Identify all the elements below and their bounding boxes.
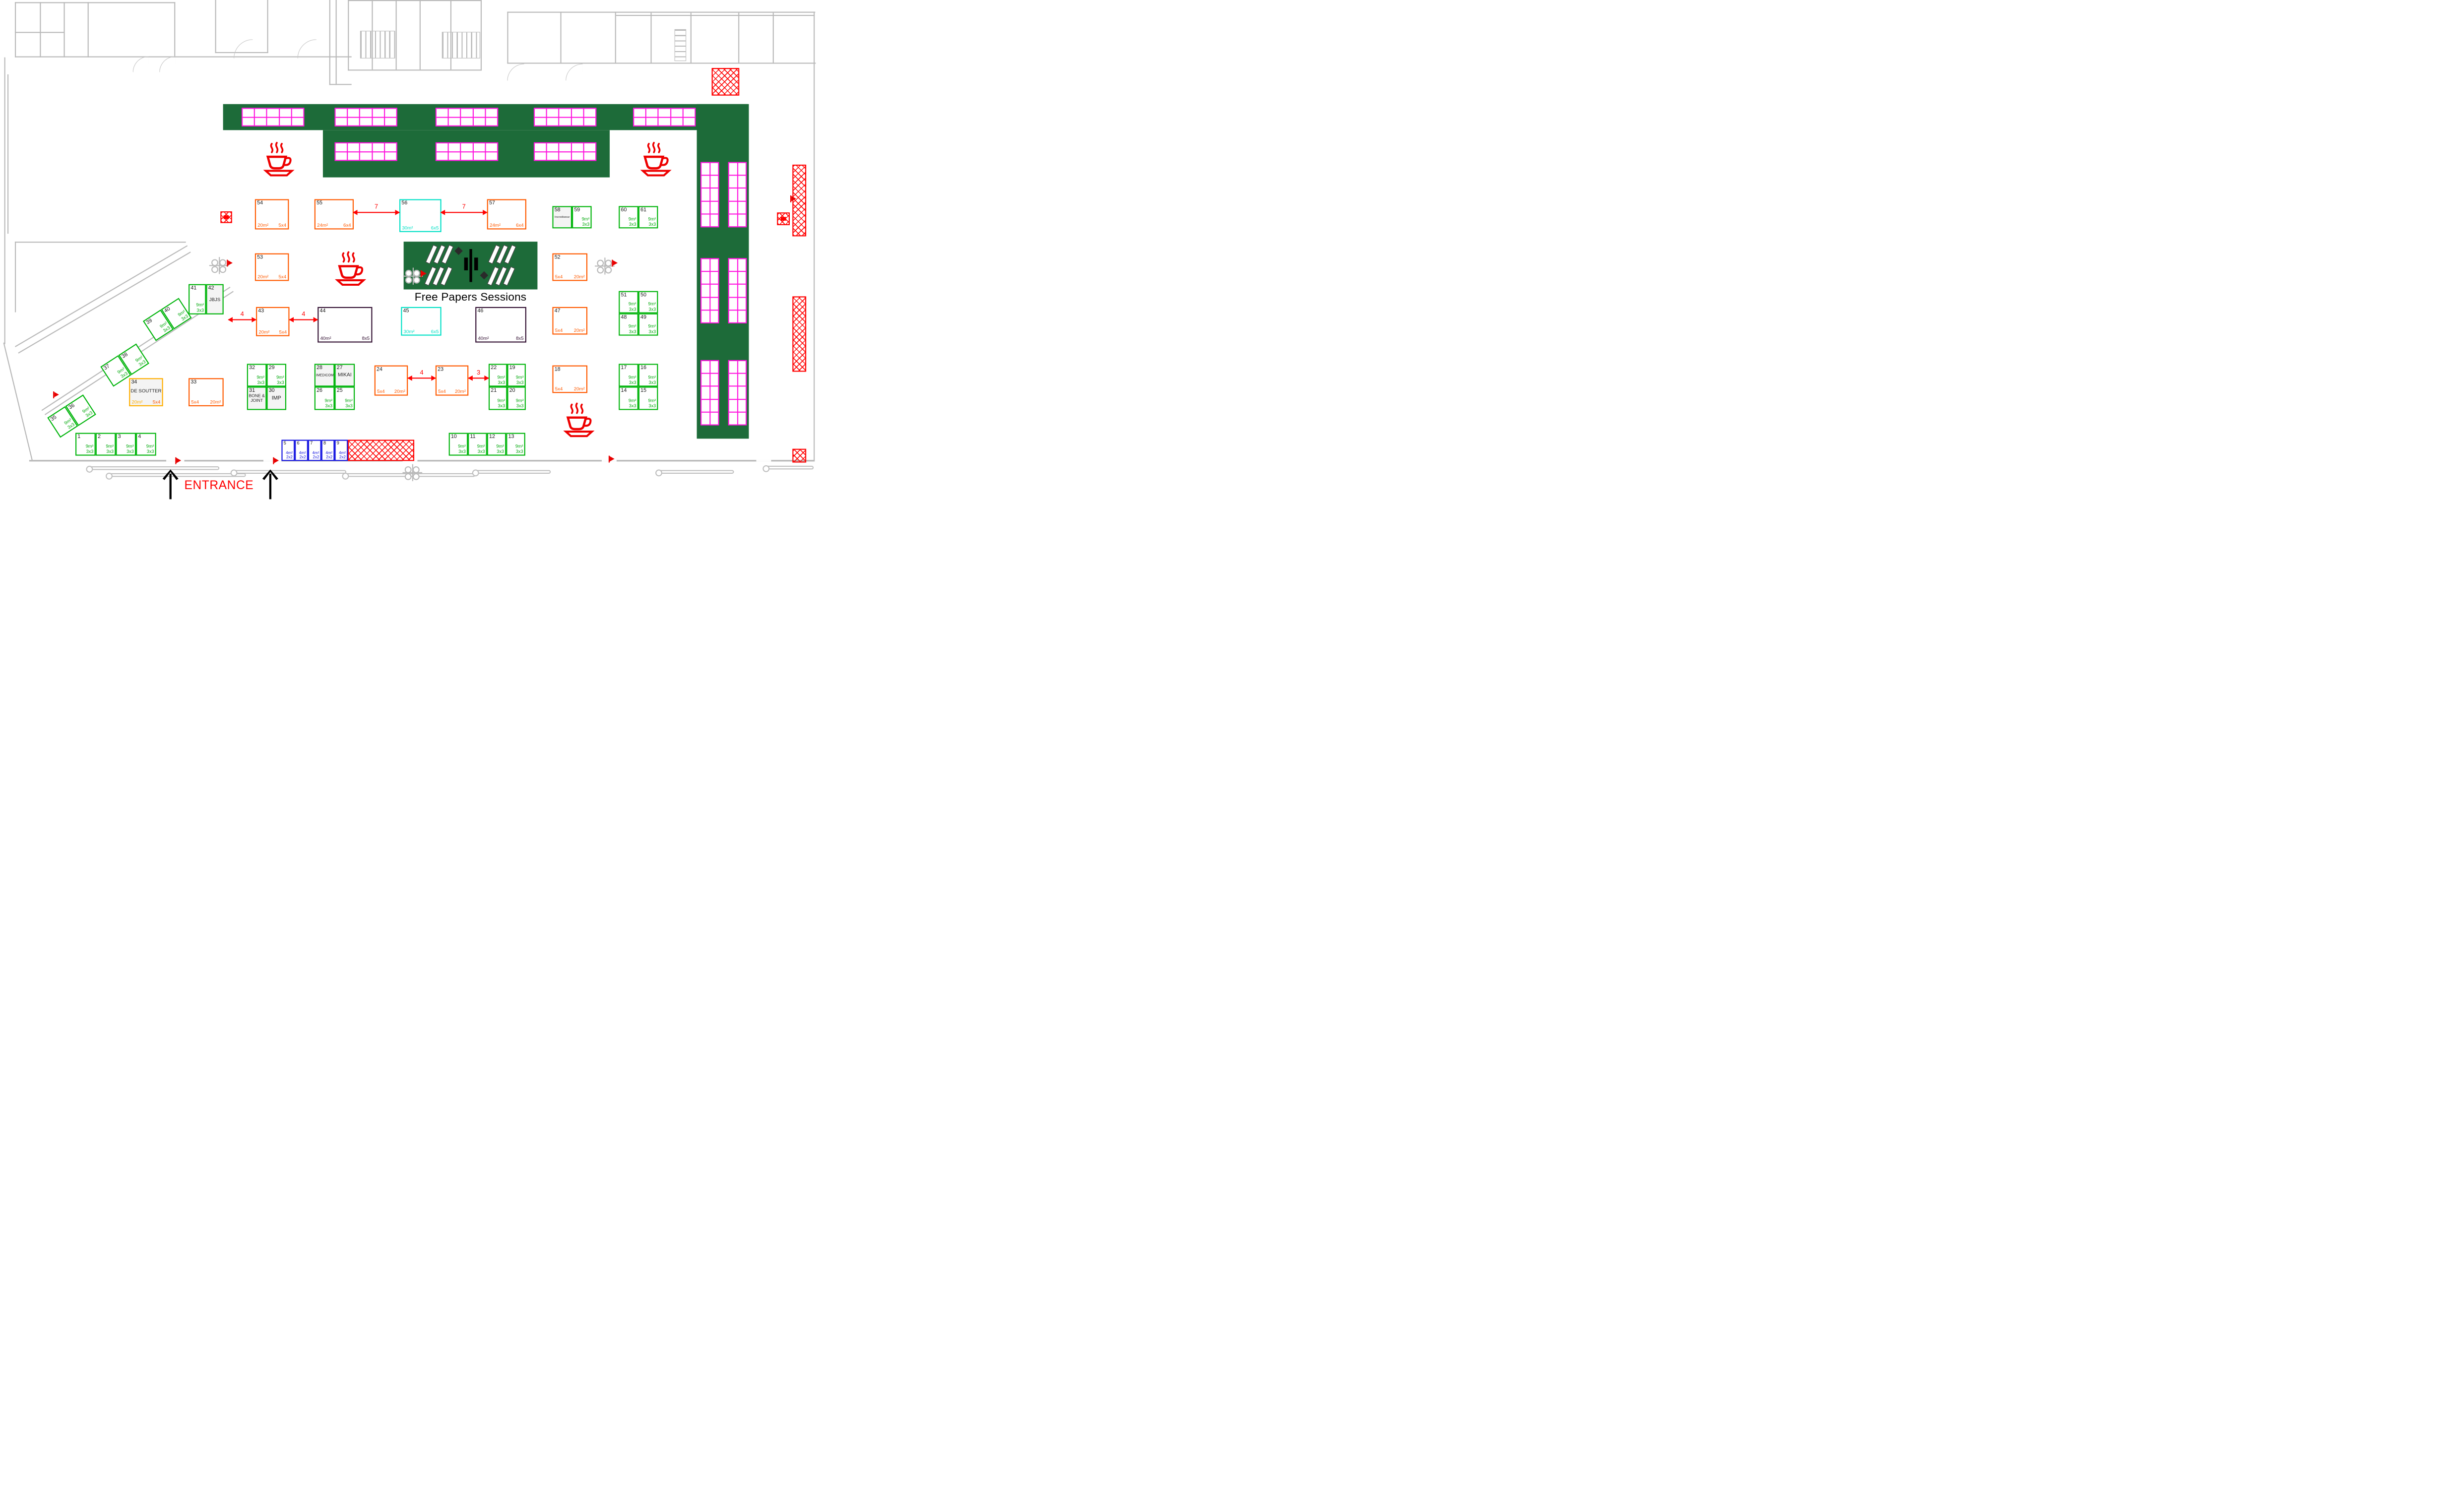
- poster-board-cell: [535, 118, 546, 126]
- stairs-icon: [675, 29, 687, 61]
- booth-number: 22: [491, 365, 497, 371]
- poster-board-cell: [255, 118, 266, 126]
- booth-number: 43: [258, 308, 264, 314]
- door-flag-icon: [53, 391, 60, 398]
- booth-size-label: 4m²2x2: [339, 450, 346, 459]
- wall-segment: [15, 2, 175, 3]
- booth-30: 30IMP: [266, 386, 286, 410]
- booth-number: 29: [269, 365, 275, 371]
- booth-number: 25: [337, 388, 343, 394]
- wall-segment: [348, 0, 482, 1]
- poster-board-cell: [547, 152, 559, 160]
- poster-board-cell: [461, 118, 473, 126]
- booth-22: 229m²3x3: [489, 364, 507, 386]
- poster-board-cell: [461, 109, 473, 117]
- booth-label-left: 30m²: [402, 226, 413, 231]
- poster-board-cell: [437, 143, 448, 151]
- booth-number: 12: [489, 434, 495, 440]
- door-flag-icon: [421, 270, 428, 277]
- wall-segment: [481, 0, 482, 70]
- poster-board-cell: [729, 400, 737, 412]
- poster-board-cell: [738, 189, 746, 200]
- poster-board-cell: [449, 143, 460, 151]
- poster-board-cell: [360, 143, 372, 151]
- poster-board-cell: [684, 118, 695, 126]
- booth-label-right: 8x5: [516, 336, 524, 341]
- poster-board-cell: [701, 163, 709, 175]
- wall-segment: [267, 0, 268, 53]
- booth-label-left: 40m²: [320, 336, 331, 341]
- coffee-icon: [262, 141, 295, 180]
- booth-label-left: 30m²: [404, 329, 415, 334]
- poster-board-cell: [684, 109, 695, 117]
- poster-board: [334, 142, 397, 161]
- poster-board-cell: [280, 118, 291, 126]
- poster-board-cell: [560, 109, 571, 117]
- booth-number: 36: [67, 402, 76, 411]
- booth-number: 1: [77, 434, 80, 440]
- door-opening: [757, 460, 771, 461]
- entrance-label: ENTRANCE: [184, 478, 253, 493]
- dimension-arrow: 7: [441, 212, 487, 213]
- chair-icon: [405, 466, 412, 473]
- poster-board-cell: [729, 259, 737, 271]
- poster-board-cell: [486, 152, 497, 160]
- booth-4: 49m²3x3: [136, 433, 156, 456]
- booth-label-left: 24m²: [490, 223, 501, 228]
- booth-48: 489m²3x3: [619, 314, 638, 336]
- door-swing-arc: [133, 56, 149, 72]
- booth-46: 4640m²8x5: [475, 307, 526, 343]
- booth-24: 245x420m²: [375, 366, 408, 396]
- poster-board-cell: [710, 311, 718, 322]
- poster-board-cell: [738, 163, 746, 175]
- service-table-icon: [405, 466, 421, 480]
- booth-size-label: 9m²3x3: [134, 355, 146, 368]
- wall-segment: [616, 63, 816, 63]
- stairs-icon: [442, 32, 480, 59]
- booth-number: 40: [163, 306, 172, 315]
- booth-size-label: 9m²3x3: [256, 375, 264, 385]
- service-table-icon: [211, 259, 227, 272]
- door-flag-icon: [609, 456, 616, 463]
- poster-board-cell: [385, 143, 396, 151]
- poster-board-cell: [729, 214, 737, 226]
- booth-number: 41: [190, 285, 196, 291]
- booth-label-right: 20m²: [574, 386, 585, 391]
- booth-61: 619m²3x3: [638, 206, 658, 228]
- wall-segment: [4, 58, 5, 344]
- booth-21: 219m²3x3: [489, 386, 507, 410]
- dimension-arrow: 7: [353, 212, 399, 213]
- hatched-block: [777, 212, 790, 225]
- poster-board-cell: [738, 201, 746, 213]
- poster-board-cell: [738, 272, 746, 284]
- poster-board: [534, 108, 596, 126]
- hatched-block: [712, 68, 740, 96]
- poster-board-cell: [348, 143, 359, 151]
- poster-board-cell: [373, 152, 384, 160]
- poster-board-cell: [360, 109, 372, 117]
- poster-board: [242, 108, 304, 126]
- poster-board-cell: [738, 361, 746, 373]
- booth-number: 13: [508, 434, 514, 440]
- poster-board-cell: [729, 298, 737, 310]
- poster-board-cell: [474, 143, 485, 151]
- booth-number: 57: [489, 200, 495, 206]
- poster-board-cell: [385, 118, 396, 126]
- chair-icon: [219, 266, 226, 273]
- poster-board-cell: [701, 387, 709, 399]
- booth-47: 475x420m²: [552, 307, 587, 335]
- dimension-arrow: 3: [468, 378, 489, 378]
- poster-board-cell: [572, 118, 583, 126]
- poster-board-cell: [701, 400, 709, 412]
- chair-icon: [405, 270, 412, 277]
- free-papers-label: Free Papers Sessions: [397, 291, 544, 304]
- booth-20: 209m²3x3: [507, 386, 525, 410]
- dimension-label: 4: [420, 369, 423, 376]
- poster-board-cell: [729, 413, 737, 425]
- booth-label-left: 20m²: [257, 223, 268, 228]
- booth-number: 7: [310, 441, 313, 446]
- poster-board: [700, 258, 719, 323]
- poster-board-cell: [738, 413, 746, 425]
- poster-board-cell: [659, 109, 670, 117]
- booth-50: 509m²3x3: [638, 291, 658, 314]
- wall-segment: [15, 2, 16, 57]
- wall-segment: [507, 12, 815, 13]
- poster-board-cell: [267, 118, 279, 126]
- poster-board-cell: [437, 109, 448, 117]
- booth-size-label: 4m²2x2: [325, 450, 332, 459]
- booth-number: 10: [451, 434, 457, 440]
- booth-number: 9: [337, 441, 339, 446]
- booth-number: 24: [377, 367, 382, 373]
- booth-18: 185x420m²: [552, 366, 587, 393]
- poster-board-cell: [560, 152, 571, 160]
- booth-exhibitor-name: BONE & JOINT: [249, 393, 265, 403]
- booth-27: 27MIKAI: [334, 364, 355, 386]
- booth-19: 199m²3x3: [507, 364, 525, 386]
- poster-board-cell: [584, 109, 595, 117]
- chair-icon: [413, 270, 420, 277]
- booth-number: 44: [320, 308, 326, 314]
- poster-board-cell: [710, 259, 718, 271]
- booth-label-left: 40m²: [478, 336, 489, 341]
- booth-size-label: 4m²2x2: [299, 450, 306, 459]
- booth-number: 16: [640, 365, 646, 371]
- poster-board-cell: [738, 285, 746, 297]
- booth-number: 55: [316, 200, 322, 206]
- poster-board: [334, 108, 397, 126]
- booth-number: 32: [249, 365, 255, 371]
- door-swing-arc: [234, 39, 253, 59]
- booth-size-label: 9m²3x3: [196, 303, 204, 313]
- booth-label-left: 5x4: [438, 389, 446, 394]
- booth-size-label: 9m²3x3: [497, 398, 505, 408]
- booth-number: 38: [121, 352, 129, 360]
- arrow-stem: [170, 474, 172, 499]
- poster-board-cell: [461, 152, 473, 160]
- hatched-block-core: [224, 215, 229, 219]
- poster-board-cell: [336, 118, 347, 126]
- booth-number: 26: [316, 388, 322, 394]
- booth-number: 4: [138, 434, 141, 440]
- booth-number: 47: [555, 308, 561, 314]
- door-flag-icon: [227, 260, 234, 267]
- booth-number: 21: [491, 388, 497, 394]
- booth-32: 329m²3x3: [247, 364, 267, 386]
- poster-board-cell: [584, 143, 595, 151]
- booth-5: 54m²2x2: [281, 440, 295, 461]
- booth-number: 15: [640, 388, 646, 394]
- poster-board-cell: [729, 311, 737, 322]
- booth-44: 4440m²8x5: [317, 307, 372, 343]
- floor-plan: POSTER AREA Free Papers Sessions ENTRANC…: [0, 0, 820, 503]
- poster-board-cell: [572, 143, 583, 151]
- wall-diagonal: [3, 343, 33, 461]
- booth-60: 609m²3x3: [619, 206, 638, 228]
- poster-board-cell: [373, 118, 384, 126]
- booth-size-label: 9m²3x3: [629, 324, 636, 334]
- chair-icon: [405, 277, 412, 284]
- booth-number: 34: [131, 379, 137, 385]
- poster-board-cell: [547, 118, 559, 126]
- poster-board-cell: [437, 152, 448, 160]
- booth-size-label: 9m²3x3: [629, 398, 636, 408]
- radiator: [475, 470, 551, 473]
- booth-54: 5420m²5x4: [255, 199, 289, 229]
- door-swing-arc: [159, 56, 175, 72]
- poster-board-cell: [701, 272, 709, 284]
- booth-7: 74m²2x2: [308, 440, 321, 461]
- booth-size-label: 9m²3x3: [515, 444, 523, 454]
- booth-1: 19m²3x3: [75, 433, 96, 456]
- hatched-block-core: [781, 217, 786, 220]
- booth-55: 5524m²6x4: [315, 199, 354, 229]
- poster-board-cell: [738, 298, 746, 310]
- poster-board-cell: [738, 374, 746, 386]
- poster-board-cell: [701, 189, 709, 200]
- wall-segment: [329, 84, 352, 85]
- poster-board-cell: [449, 152, 460, 160]
- wall-segment: [691, 13, 692, 64]
- poster-board: [728, 258, 747, 323]
- booth-number: 54: [257, 200, 263, 206]
- wall-segment: [650, 13, 651, 64]
- booth-size-label: 9m²3x3: [582, 217, 590, 227]
- poster-board-cell: [710, 400, 718, 412]
- poster-board: [436, 108, 498, 126]
- booth-size-label: 9m²3x3: [106, 444, 114, 454]
- poster-board-cell: [292, 109, 304, 117]
- wall-segment: [7, 74, 8, 234]
- booth-number: 20: [509, 388, 515, 394]
- poster-board-cell: [336, 109, 347, 117]
- chair-icon: [219, 259, 226, 266]
- booth-label-left: 5x4: [555, 275, 563, 280]
- poster-board-cell: [710, 189, 718, 200]
- poster-board-cell: [738, 214, 746, 226]
- booth-label-right: 5x4: [279, 330, 287, 335]
- poster-board-cell: [701, 176, 709, 188]
- hatched-block: [792, 296, 806, 372]
- chair-icon: [413, 473, 420, 480]
- booth-number: 14: [621, 388, 627, 394]
- booth-label-right: 6x4: [516, 223, 524, 228]
- door-flag-icon: [612, 260, 619, 267]
- hatched-block: [792, 449, 806, 463]
- dimension-label: 4: [241, 310, 244, 317]
- poster-board-cell: [474, 109, 485, 117]
- poster-board-cell: [486, 109, 497, 117]
- poster-board-cell: [659, 118, 670, 126]
- booth-10: 109m²3x3: [449, 433, 468, 456]
- wall-segment: [88, 2, 89, 57]
- wall-segment: [175, 56, 351, 57]
- booth-15: 159m²3x3: [638, 386, 658, 410]
- booth-number: 2: [98, 434, 101, 440]
- poster-board-cell: [701, 413, 709, 425]
- booth-17: 179m²3x3: [619, 364, 638, 386]
- booth-number: 17: [621, 365, 627, 371]
- poster-board-cell: [461, 143, 473, 151]
- poster-board-cell: [671, 109, 683, 117]
- entrance-arrow-icon: [262, 469, 278, 500]
- poster-board-cell: [738, 311, 746, 322]
- service-table-icon: [597, 260, 613, 273]
- booth-size-label: 9m²3x3: [276, 375, 284, 385]
- poster-board-cell: [385, 152, 396, 160]
- booth-number: 35: [50, 414, 58, 423]
- booth-52: 525x420m²: [552, 253, 587, 281]
- booth-label-left: 5x4: [191, 400, 199, 405]
- poster-board-cell: [535, 143, 546, 151]
- radiator: [89, 466, 219, 470]
- wall-segment: [738, 13, 739, 64]
- booth-size-label: 9m²3x3: [648, 324, 656, 334]
- poster-board-cell: [348, 152, 359, 160]
- poster-board-cell: [535, 109, 546, 117]
- booth-58: 58Incrediwear: [552, 206, 572, 228]
- wall-segment: [29, 460, 815, 461]
- booth-number: 52: [555, 254, 561, 260]
- poster-board: [633, 108, 695, 126]
- booth-number: 42: [208, 285, 214, 291]
- radiator: [766, 466, 814, 469]
- booth-29: 299m²3x3: [266, 364, 286, 386]
- poster-board-cell: [348, 109, 359, 117]
- wall-segment: [15, 56, 175, 57]
- booth-number: 23: [438, 367, 443, 373]
- poster-board-cell: [729, 201, 737, 213]
- booth-number: 33: [190, 379, 196, 385]
- poster-board-cell: [738, 400, 746, 412]
- booth-number: 19: [509, 365, 515, 371]
- dimension-label: 4: [302, 310, 305, 317]
- door-flag-icon: [273, 457, 280, 464]
- booth-25: 259m²3x3: [334, 386, 355, 410]
- booth-exhibitor-name: DE SOUTTER: [130, 388, 161, 393]
- poster-board-cell: [701, 259, 709, 271]
- poster-board-cell: [701, 361, 709, 373]
- poster-board-cell: [474, 152, 485, 160]
- wall-segment: [174, 2, 175, 57]
- chair-icon: [413, 277, 420, 284]
- hatched-block: [220, 211, 232, 223]
- booth-size-label: 9m²3x3: [325, 398, 333, 408]
- booth-size-label: 9m²3x3: [81, 406, 93, 418]
- poster-board-cell: [449, 109, 460, 117]
- booth-number: 50: [640, 292, 646, 298]
- poster-board-cell: [710, 298, 718, 310]
- booth-size-label: 9m²3x3: [516, 375, 524, 385]
- booth-label-left: 20m²: [132, 400, 143, 405]
- booth-exhibitor-name: JBJS: [208, 297, 222, 302]
- booth-size-label: 9m²3x3: [648, 398, 656, 408]
- coffee-icon: [563, 401, 595, 440]
- booth-number: 61: [640, 207, 646, 213]
- poster-board-cell: [729, 285, 737, 297]
- booth-label-right: 20m²: [455, 389, 466, 394]
- poster-board-cell: [710, 214, 718, 226]
- speaker-table: [464, 257, 468, 270]
- poster-board-cell: [336, 143, 347, 151]
- poster-board-cell: [547, 143, 559, 151]
- podium-divider: [469, 249, 472, 282]
- booth-label-left: 24m²: [317, 223, 328, 228]
- poster-board-cell: [360, 118, 372, 126]
- booth-number: 11: [470, 434, 475, 440]
- booth-number: 27: [337, 365, 343, 371]
- poster-board-cell: [729, 163, 737, 175]
- booth-9: 94m²2x2: [334, 440, 348, 461]
- stairs-icon: [360, 31, 395, 59]
- booth-exhibitor-name: IMP: [268, 395, 285, 401]
- booth-exhibitor-name: IMEDICOM: [316, 373, 333, 377]
- booth-26: 269m²3x3: [315, 386, 335, 410]
- poster-board-cell: [336, 152, 347, 160]
- poster-board-cell: [729, 176, 737, 188]
- poster-board-cell: [701, 285, 709, 297]
- booth-31: 31BONE & JOINT: [247, 386, 267, 410]
- poster-board-cell: [373, 143, 384, 151]
- booth-size-label: 4m²2x2: [286, 450, 293, 459]
- dimension-arrow: 4: [289, 319, 317, 320]
- booth-56: 5630m²6x5: [399, 199, 442, 232]
- wall-segment: [773, 13, 774, 64]
- door-swing-arc: [298, 39, 317, 59]
- poster-board: [728, 162, 747, 228]
- wall-segment: [215, 0, 216, 53]
- poster-board-cell: [738, 387, 746, 399]
- poster-board-cell: [710, 163, 718, 175]
- booth-59: 599m²3x3: [572, 206, 592, 228]
- projector-icon: [480, 271, 489, 280]
- poster-board-cell: [710, 285, 718, 297]
- booth-label-left: 5x4: [377, 389, 385, 394]
- speaker-table: [474, 257, 478, 270]
- booth-number: 18: [555, 367, 561, 373]
- chair-icon: [405, 473, 412, 480]
- poster-board-cell: [572, 152, 583, 160]
- booth-label-right: 20m²: [210, 400, 221, 405]
- booth-label-right: 6x5: [431, 329, 439, 334]
- poster-board-cell: [280, 109, 291, 117]
- booth-label-right: 20m²: [394, 389, 405, 394]
- booth-number: 56: [401, 200, 407, 206]
